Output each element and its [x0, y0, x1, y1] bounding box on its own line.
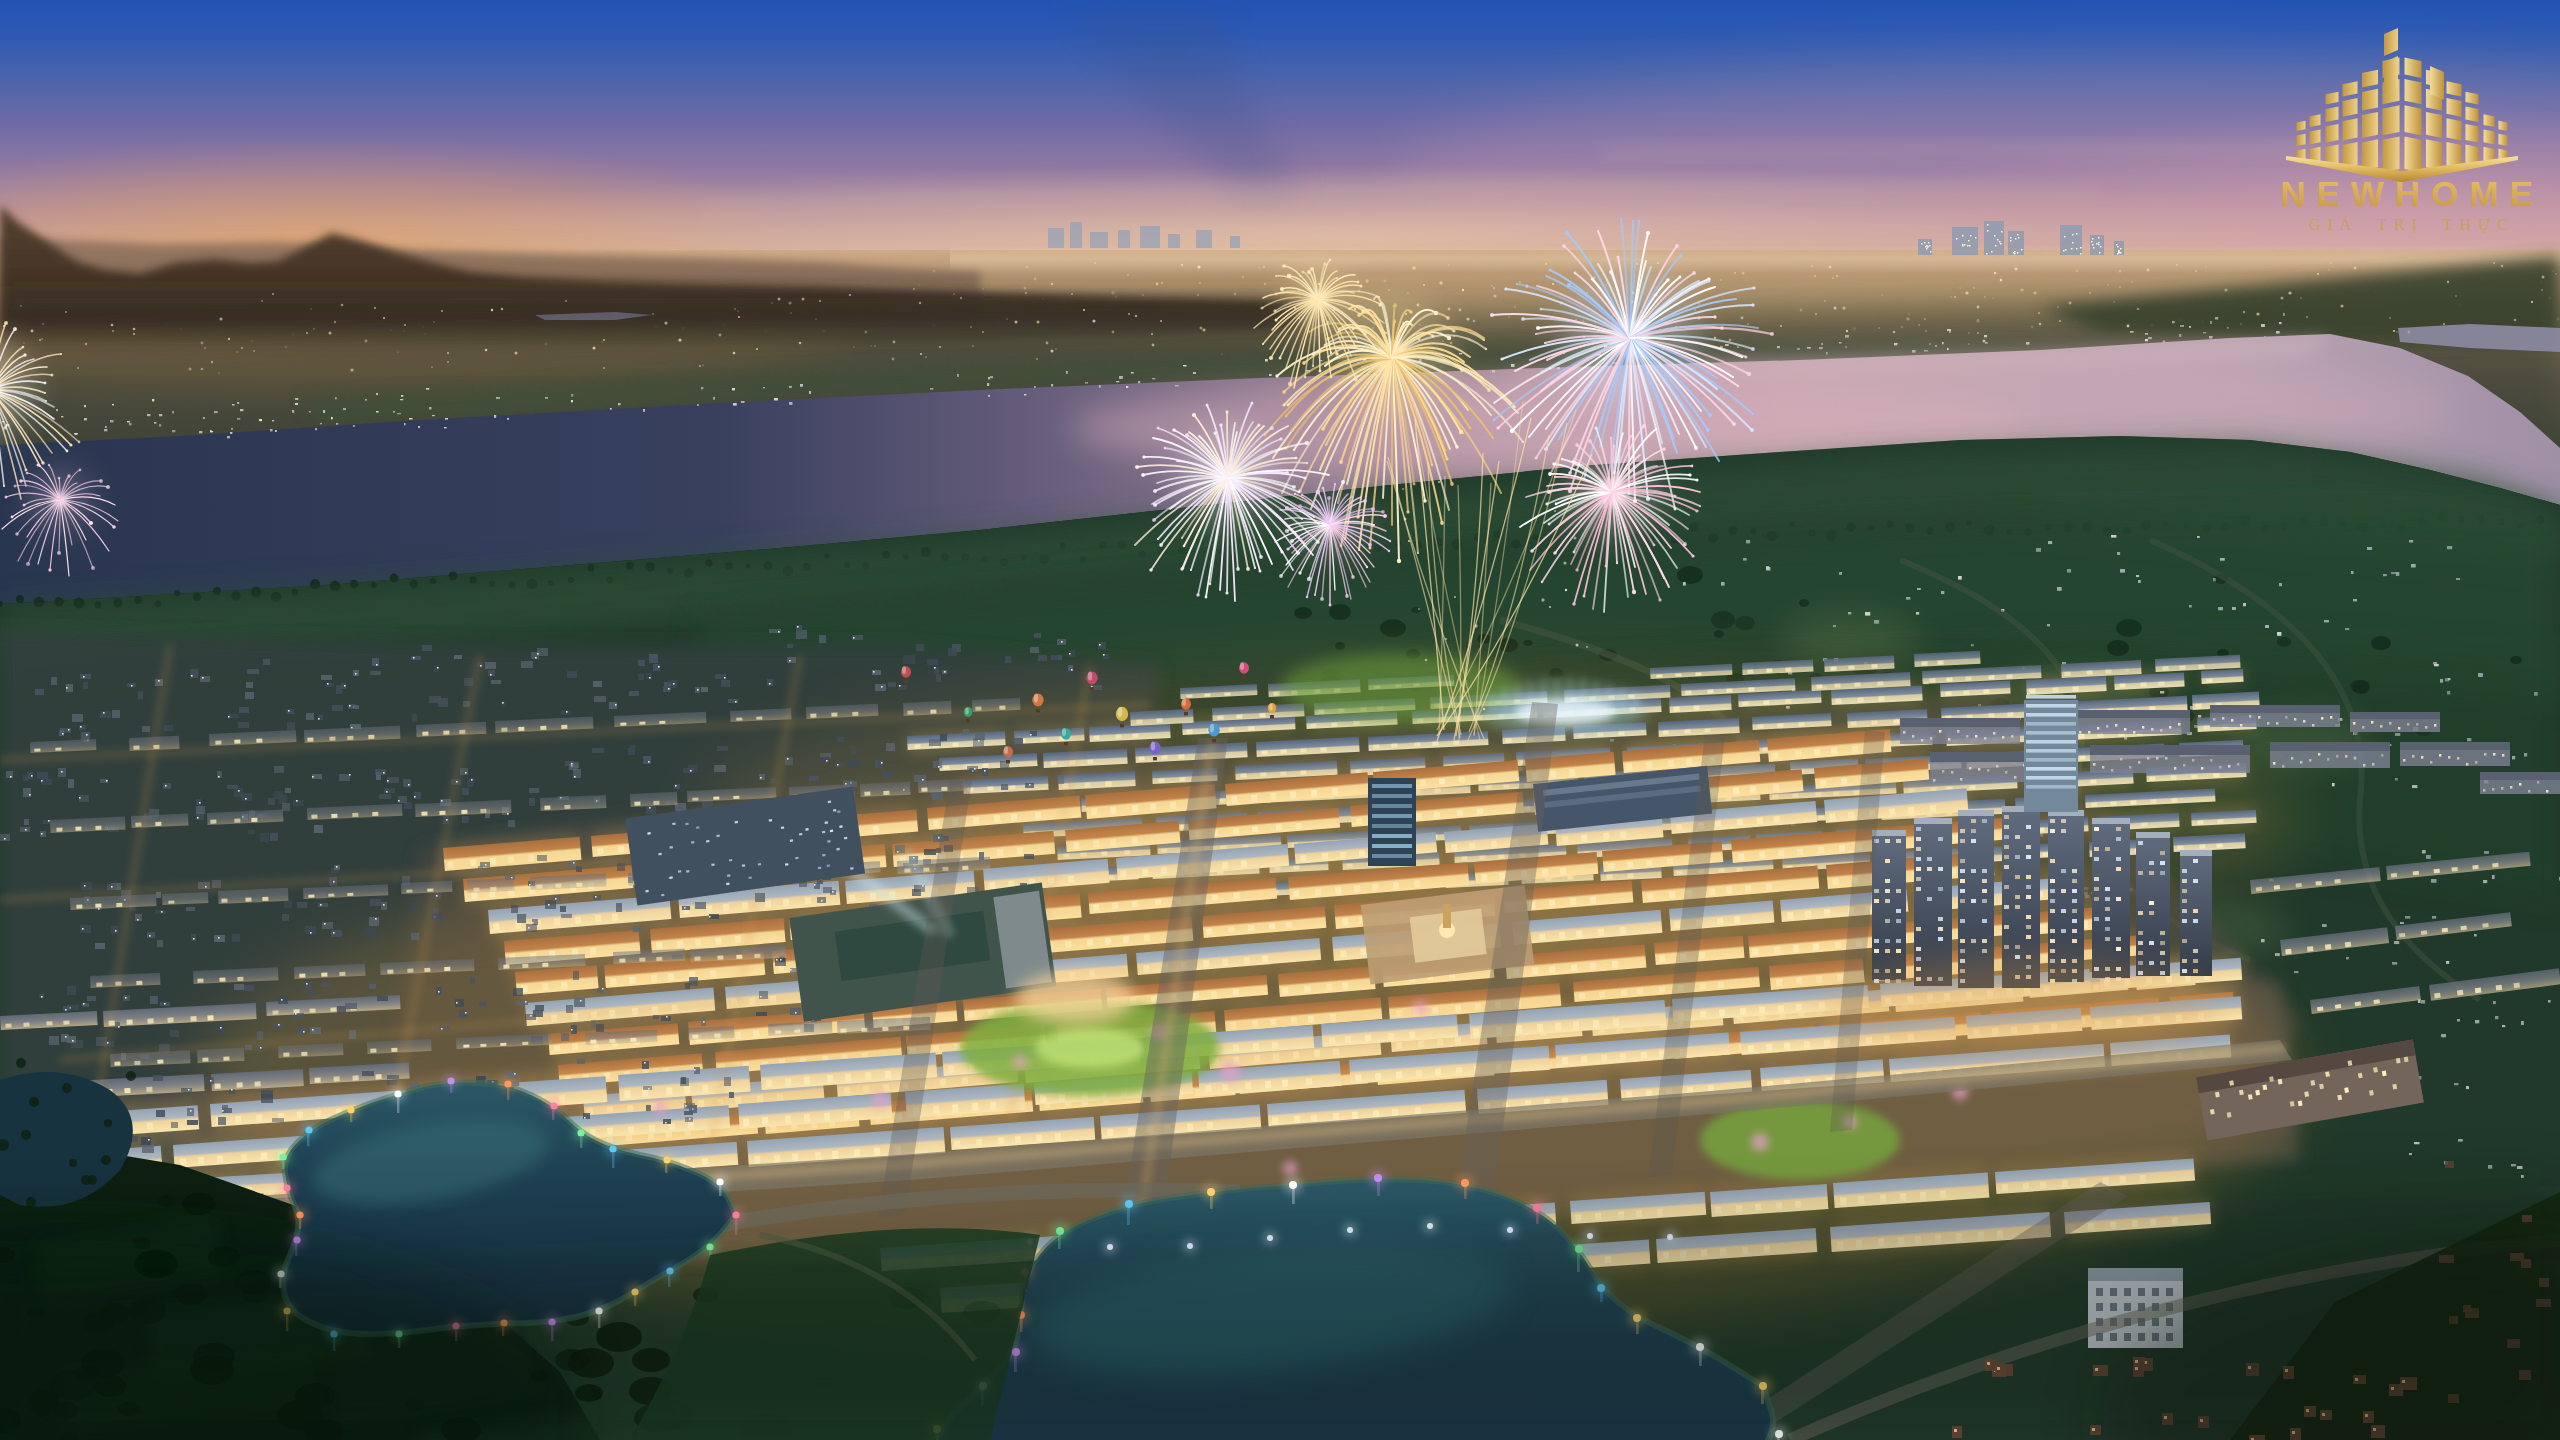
svg-text:GIÁ TRỊ THỰC: GIÁ TRỊ THỰC: [2309, 215, 2515, 233]
svg-text:NEWHOME: NEWHOME: [2280, 174, 2544, 213]
